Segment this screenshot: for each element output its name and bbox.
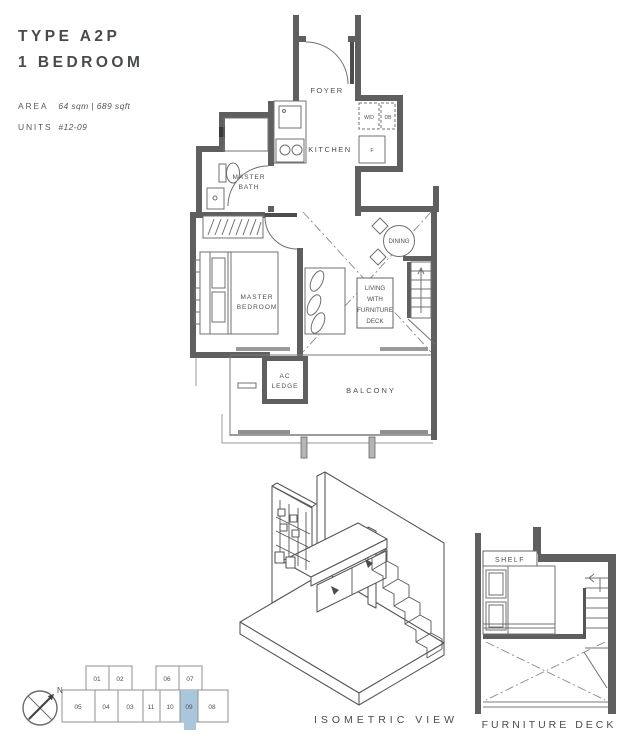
deck-stairs-arrow (589, 578, 600, 592)
room-label-balcony: BALCONY (346, 386, 396, 395)
unit-number-07: 07 (186, 676, 194, 683)
balcony-post (369, 437, 375, 458)
highlighted-unit-tab (184, 722, 196, 730)
room-label-master-bath-1: MASTER (232, 174, 265, 181)
floorplan-page: TYPE A2P 1 BEDROOM AREA 64 sqm | 689 sqf… (0, 0, 638, 735)
unit-number-02: 02 (116, 676, 124, 683)
unit-number-09-highlighted: 09 (185, 704, 193, 711)
sliding-door-panel (380, 347, 428, 351)
unit-number-05: 05 (74, 704, 82, 711)
unit-number-04: 04 (102, 704, 110, 711)
sofa (304, 268, 345, 335)
bath-fittings (207, 118, 268, 209)
bedroom-door-leaf (265, 213, 297, 217)
bath-sink (207, 188, 224, 209)
furniture-deck-caption: FURNITURE DECK (482, 719, 617, 731)
unit-number-08: 08 (208, 704, 216, 711)
label-fridge: F (370, 148, 374, 154)
master-bed (195, 252, 278, 334)
unit-number-03: 03 (126, 704, 134, 711)
room-label-ac-1: AC (279, 373, 290, 380)
room-label-ac-2: LEDGE (271, 383, 298, 390)
room-label-master-bedroom-2: BEDROOM (237, 304, 278, 311)
room-label-master-bedroom-1: MASTER (240, 294, 273, 301)
toilet-tank (219, 164, 226, 182)
shelf-label: SHELF (495, 557, 525, 564)
dining-chair (370, 249, 386, 265)
compass-needle (29, 698, 50, 719)
dining-chair (372, 218, 388, 234)
label-washer-dryer: W/D (364, 115, 374, 121)
bedroom-door-arc (265, 217, 297, 249)
room-label-living-1: LIVING (365, 285, 385, 292)
unit-number-01: 01 (93, 676, 101, 683)
isometric-view: ISOMETRIC VIEW (240, 472, 458, 726)
room-label-living-2: WITH (367, 296, 383, 303)
sliding-door-panel (236, 347, 290, 351)
plans-svg: FOYER KITCHEN W/D DB F MASTER BATH MASTE… (0, 0, 638, 735)
key-plan: 01 02 06 07 05 04 03 11 10 09 08 (62, 666, 228, 730)
isometric-caption: ISOMETRIC VIEW (314, 714, 458, 726)
room-label-living-3: FURNITURE (357, 307, 393, 314)
main-floor-plan: FOYER KITCHEN W/D DB F MASTER BATH MASTE… (190, 15, 439, 458)
unit-number-11: 11 (148, 704, 155, 711)
shower-area (224, 118, 268, 151)
room-label-dining: DINING (389, 239, 410, 245)
compass-north-label: N (57, 686, 63, 695)
compass: N (23, 686, 63, 725)
deck-bed (483, 566, 555, 634)
room-label-master-bath-2: BATH (239, 184, 260, 191)
pipe-tick (238, 383, 256, 388)
balcony-elements (196, 347, 433, 458)
wardrobe (203, 216, 263, 238)
room-label-foyer: FOYER (310, 86, 343, 95)
unit-number-10: 10 (166, 704, 174, 711)
entry-door-arc (306, 42, 348, 84)
label-db: DB (385, 115, 393, 121)
room-label-living-4: DECK (366, 318, 384, 325)
balcony-post (301, 437, 307, 458)
room-label-kitchen: KITCHEN (308, 145, 351, 154)
deck-stairs (583, 574, 608, 688)
entry-door-leaf (350, 42, 354, 84)
deck-void (483, 642, 608, 707)
unit-number-06: 06 (163, 676, 171, 683)
furniture-deck-plan: SHELF (475, 527, 616, 731)
